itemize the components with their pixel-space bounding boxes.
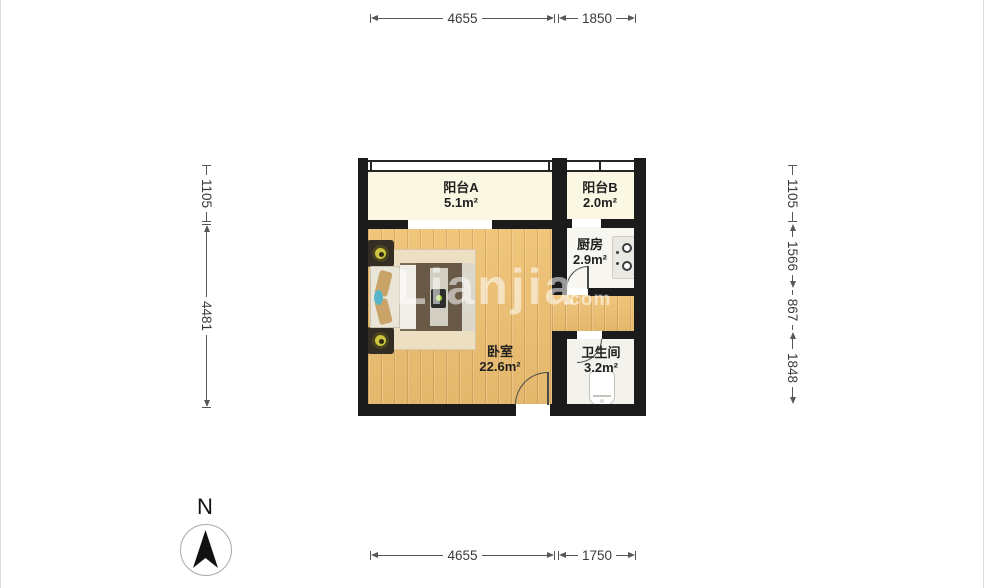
dim-value: 1566 [786, 237, 801, 275]
toilet-seam [593, 395, 611, 397]
dim-value: 1848 [786, 349, 801, 387]
wall-bathroom-top-right [602, 331, 634, 339]
dim-value: 1850 [578, 11, 616, 26]
room-area: 3.2m² [567, 360, 635, 375]
dim-bottom-right: 1750 [558, 547, 636, 563]
bed-accent [374, 290, 383, 305]
window-tick [370, 162, 372, 170]
dim-value: 4481 [200, 297, 215, 335]
room-label-bathroom: 卫生间 3.2m² [567, 345, 635, 376]
room-label-balcony-a: 阳台A 5.1m² [410, 180, 512, 211]
stove-burner-top-icon [622, 243, 632, 253]
north-label: N [197, 494, 213, 520]
window-tick [548, 162, 550, 170]
dim-value: 1105 [786, 175, 801, 212]
room-name: 卧室 [456, 344, 544, 359]
wall-balcony-divider [552, 158, 567, 222]
room-label-bedroom: 卧室 22.6m² [456, 344, 544, 375]
room-name: 厨房 [558, 237, 622, 252]
page-left-edge [0, 0, 1, 588]
dim-right-corridor: 867 [785, 290, 801, 330]
wall-right [634, 158, 646, 416]
window-tick [599, 162, 601, 170]
dim-left-bedroom: 4481 [199, 224, 215, 408]
dim-top-balcony-b: 1850 [558, 10, 636, 26]
wall-balcony-b-bottom [601, 219, 634, 228]
dim-value: 4655 [443, 548, 481, 563]
toilet-flush [600, 399, 604, 403]
wall-bottom-right [550, 404, 646, 416]
corridor-floor [552, 295, 634, 331]
dim-top-main: 4655 [370, 10, 555, 26]
balcony-a-window [368, 160, 552, 172]
lamp-top-icon [372, 245, 389, 262]
blanket-fold [462, 263, 475, 331]
dim-left-balcony: 1105 [199, 165, 215, 222]
wall-bottom-left [358, 404, 516, 416]
room-label-kitchen: 厨房 2.9m² [558, 237, 622, 268]
room-area: 2.0m² [566, 195, 634, 210]
lamp-bottom-icon [372, 332, 389, 349]
wall-kitchen-bottom [588, 288, 634, 296]
wall-left [358, 158, 368, 416]
dim-right-bathroom: 1848 [785, 332, 801, 404]
room-area: 5.1m² [410, 195, 512, 210]
room-area: 22.6m² [456, 359, 544, 374]
compass-needle-icon [181, 525, 230, 574]
wall-balcony-a-bottom-right [492, 220, 552, 229]
room-name: 阳台B [566, 180, 634, 195]
dim-value: 4655 [443, 11, 481, 26]
bed-tray-dot [436, 295, 442, 301]
compass [180, 524, 232, 576]
balcony-b-window [567, 160, 634, 172]
dim-value: 1105 [200, 175, 215, 212]
wall-balcony-a-bottom-left [368, 220, 408, 229]
floorplan-page: 阳台A 5.1m² 阳台B 2.0m² 厨房 2.9m² 卧室 22.6m² 卫… [0, 0, 984, 588]
dim-right-kitchen: 1566 [785, 224, 801, 288]
bed-sheet [400, 263, 416, 331]
dim-bottom-main: 4655 [370, 547, 555, 563]
room-area: 2.9m² [558, 252, 622, 267]
room-name: 阳台A [410, 180, 512, 195]
room-label-balcony-b: 阳台B 2.0m² [566, 180, 634, 211]
stove-burner-bottom-icon [622, 261, 632, 271]
dim-value: 867 [786, 295, 801, 326]
dim-right-balcony: 1105 [785, 165, 801, 222]
wall-balcony-b-stub [567, 219, 572, 228]
room-name: 卫生间 [567, 345, 635, 360]
wall-bathroom-top-left [567, 331, 577, 339]
dim-value: 1750 [578, 548, 616, 563]
